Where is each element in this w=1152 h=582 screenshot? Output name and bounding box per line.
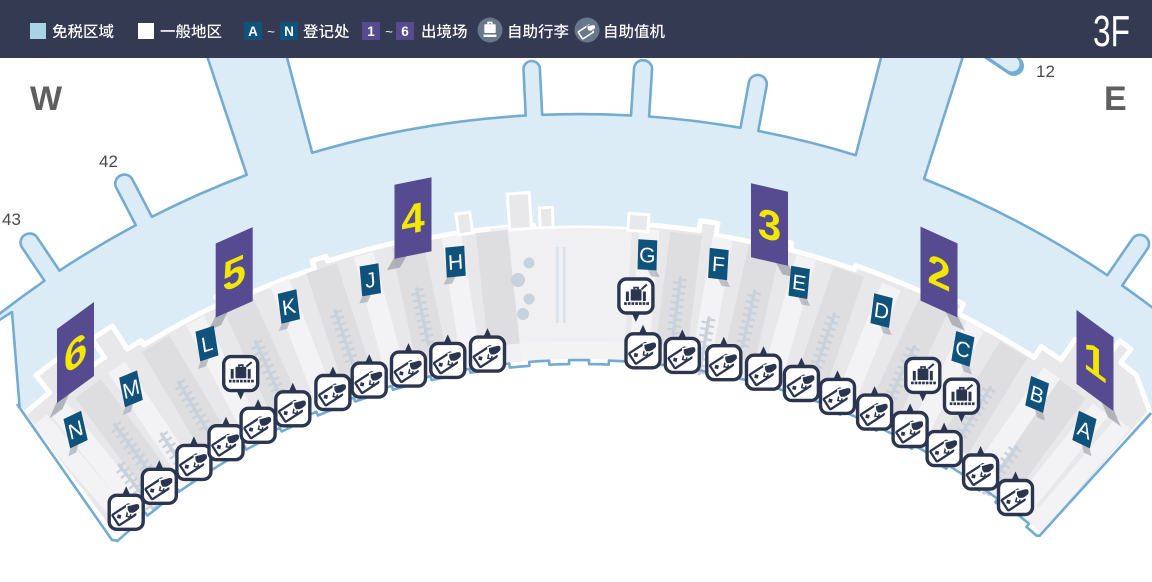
svg-text:3: 3 <box>758 199 781 252</box>
svg-text:E: E <box>1104 80 1127 118</box>
svg-text:H: H <box>447 250 463 274</box>
svg-text:K: K <box>281 294 297 320</box>
svg-text:J: J <box>364 268 376 293</box>
svg-text:4: 4 <box>401 193 425 244</box>
svg-text:~: ~ <box>267 24 275 39</box>
svg-text:6: 6 <box>401 24 409 39</box>
svg-text:42: 42 <box>99 152 118 171</box>
svg-text:3F: 3F <box>1093 7 1130 56</box>
svg-text:G: G <box>639 244 656 268</box>
svg-text:F: F <box>711 253 725 277</box>
svg-text:1: 1 <box>367 24 375 39</box>
svg-text:E: E <box>791 271 807 296</box>
svg-text:D: D <box>873 298 891 325</box>
svg-text:12: 12 <box>1036 62 1055 81</box>
svg-text:43: 43 <box>2 210 21 229</box>
svg-text:~: ~ <box>385 24 393 39</box>
svg-text:N: N <box>284 24 294 39</box>
svg-text:A: A <box>248 24 258 39</box>
svg-text:W: W <box>30 80 63 118</box>
